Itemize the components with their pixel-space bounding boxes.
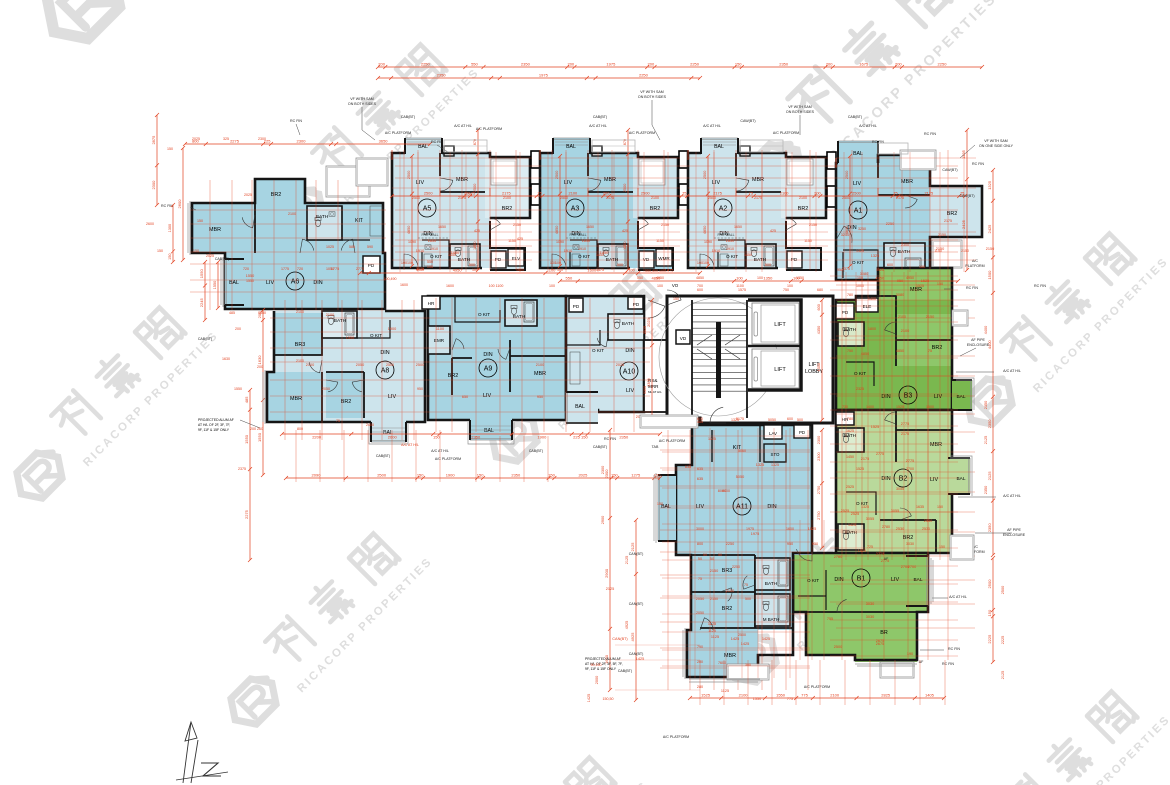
svg-text:BR2: BR2	[271, 192, 282, 198]
svg-text:CAN(BT): CAN(BT)	[629, 602, 644, 606]
svg-text:1910: 1910	[712, 249, 720, 253]
svg-text:2025: 2025	[206, 254, 214, 258]
svg-text:RC FIN: RC FIN	[604, 437, 616, 441]
svg-text:1150: 1150	[508, 239, 516, 243]
svg-text:DIN: DIN	[767, 504, 776, 510]
svg-text:LIV: LIV	[712, 180, 720, 186]
svg-text:PD: PD	[799, 430, 805, 435]
svg-text:A/C PLATFORM: A/C PLATFORM	[435, 457, 461, 461]
svg-text:LAV: LAV	[769, 431, 777, 436]
svg-text:2025: 2025	[616, 363, 624, 367]
svg-text:M BATH: M BATH	[763, 617, 779, 622]
svg-text:A/C PLATFORM: A/C PLATFORM	[804, 685, 830, 689]
svg-text:1525: 1525	[876, 268, 884, 272]
svg-text:LIV: LIV	[564, 180, 572, 186]
svg-text:1125: 1125	[721, 689, 729, 693]
svg-text:9F, 11F & 15F ONLY: 9F, 11F & 15F ONLY	[198, 428, 230, 432]
svg-text:600: 600	[887, 263, 893, 267]
svg-text:100: 100	[557, 268, 563, 272]
svg-text:550,400,100: 550,400,100	[645, 269, 665, 273]
svg-text:2350: 2350	[511, 473, 521, 478]
svg-text:780: 780	[847, 293, 853, 297]
svg-text:585: 585	[349, 245, 355, 249]
svg-text:1525: 1525	[858, 549, 866, 553]
svg-text:5050: 5050	[736, 475, 744, 479]
svg-text:730: 730	[842, 405, 848, 409]
svg-text:1025: 1025	[708, 437, 716, 441]
svg-text:485: 485	[229, 311, 235, 315]
svg-text:3300: 3300	[643, 386, 647, 394]
svg-text:CAB(BT): CAB(BT)	[401, 115, 415, 119]
svg-text:O KIT: O KIT	[852, 260, 864, 265]
svg-text:2375: 2375	[238, 467, 246, 471]
svg-text:200: 200	[567, 62, 574, 67]
svg-text:VD: VD	[680, 336, 687, 341]
svg-text:2525: 2525	[846, 485, 854, 489]
svg-text:200: 200	[257, 365, 263, 369]
svg-text:BATH: BATH	[334, 318, 347, 324]
svg-text:A/C AT H/L: A/C AT H/L	[859, 124, 877, 128]
svg-text:2325: 2325	[856, 387, 864, 391]
svg-text:2100: 2100	[306, 363, 314, 367]
svg-text:780: 780	[847, 417, 853, 421]
svg-text:BATH: BATH	[622, 321, 635, 327]
svg-text:AT H/L OF 2F, 3F, 7F,: AT H/L OF 2F, 3F, 7F,	[198, 423, 230, 427]
svg-text:2100: 2100	[296, 310, 304, 314]
svg-text:1550: 1550	[776, 693, 786, 698]
svg-text:100: 100	[407, 261, 413, 265]
svg-text:1150: 1150	[656, 239, 664, 243]
svg-text:950: 950	[537, 395, 543, 399]
svg-text:1900: 1900	[537, 435, 547, 440]
svg-text:1650: 1650	[586, 225, 594, 229]
svg-text:BAL: BAL	[575, 404, 585, 410]
svg-text:1575: 1575	[738, 288, 746, 292]
svg-text:1090: 1090	[704, 240, 712, 244]
svg-text:A/C: A/C	[972, 259, 978, 263]
svg-text:A/C AT H/L: A/C AT H/L	[589, 124, 607, 128]
svg-text:2350: 2350	[987, 419, 992, 429]
svg-text:2050: 2050	[322, 387, 330, 391]
svg-text:1600: 1600	[446, 284, 454, 288]
svg-text:1910: 1910	[578, 247, 586, 251]
svg-text:2175: 2175	[901, 432, 909, 436]
svg-text:LIV: LIV	[626, 388, 634, 394]
svg-text:4400: 4400	[984, 326, 988, 334]
svg-text:ON BOTH SIDES: ON BOTH SIDES	[348, 102, 377, 106]
svg-text:1775: 1775	[281, 267, 289, 271]
svg-text:2500: 2500	[560, 196, 568, 200]
svg-text:O KIT: O KIT	[478, 312, 490, 317]
svg-text:720: 720	[297, 267, 303, 271]
svg-text:2000: 2000	[595, 676, 599, 684]
svg-text:MBR: MBR	[209, 227, 221, 233]
svg-text:A/C PLATFORM: A/C PLATFORM	[385, 131, 411, 135]
svg-text:BR3: BR3	[722, 568, 733, 574]
svg-text:2100: 2100	[830, 693, 840, 698]
svg-text:2750: 2750	[817, 511, 821, 519]
svg-text:680: 680	[817, 288, 823, 292]
svg-text:75: 75	[928, 349, 932, 353]
svg-text:MBR: MBR	[930, 442, 942, 448]
svg-text:1635: 1635	[916, 505, 924, 509]
svg-text:2150: 2150	[726, 589, 734, 593]
svg-text:2025: 2025	[647, 318, 651, 326]
svg-text:2525: 2525	[851, 512, 859, 516]
svg-text:CAW(BT): CAW(BT)	[740, 119, 755, 123]
svg-text:BAL: BAL	[714, 144, 724, 150]
svg-text:2175: 2175	[924, 191, 933, 196]
svg-text:260: 260	[257, 427, 263, 431]
svg-text:1500: 1500	[987, 270, 992, 280]
svg-text:800: 800	[697, 542, 703, 546]
svg-text:1325: 1325	[756, 463, 764, 467]
svg-text:1625: 1625	[846, 429, 854, 433]
svg-text:RC FIN: RC FIN	[966, 286, 978, 290]
svg-text:2750: 2750	[817, 486, 821, 494]
svg-text:1975: 1975	[606, 62, 616, 67]
svg-text:CAB(BT): CAB(BT)	[848, 115, 862, 119]
svg-text:2350: 2350	[984, 401, 988, 409]
svg-text:A/C AT H/L: A/C AT H/L	[1003, 369, 1021, 373]
svg-text:1550: 1550	[213, 281, 217, 289]
svg-text:4850: 4850	[896, 349, 904, 353]
svg-text:2500: 2500	[1001, 586, 1005, 594]
svg-text:B1: B1	[857, 576, 866, 583]
svg-text:CAW(BT): CAW(BT)	[959, 194, 974, 198]
svg-text:TAB: TAB	[652, 445, 659, 449]
svg-text:2500: 2500	[386, 363, 394, 367]
svg-text:2100: 2100	[296, 359, 304, 363]
svg-text:2500: 2500	[708, 196, 716, 200]
svg-text:100: 100	[472, 268, 478, 272]
svg-text:2780: 2780	[882, 525, 890, 529]
svg-text:2125: 2125	[606, 587, 614, 591]
svg-text:2600: 2600	[177, 199, 182, 209]
svg-text:AF: AF	[919, 660, 924, 664]
svg-text:2500: 2500	[987, 579, 992, 589]
svg-text:KIT: KIT	[355, 218, 363, 224]
svg-text:2125: 2125	[625, 556, 629, 564]
svg-text:BAL: BAL	[484, 428, 494, 434]
svg-text:4850: 4850	[555, 226, 559, 234]
svg-text:1400: 1400	[868, 297, 876, 301]
svg-text:1090: 1090	[556, 240, 564, 244]
svg-text:A/C AT H/L: A/C AT H/L	[703, 124, 721, 128]
svg-text:BR2: BR2	[341, 399, 352, 405]
svg-text:750: 750	[847, 349, 853, 353]
svg-text:2250: 2250	[726, 542, 734, 546]
svg-text:RC FIN: RC FIN	[431, 140, 443, 144]
svg-text:150: 150	[157, 249, 163, 253]
svg-text:7600: 7600	[718, 661, 726, 665]
svg-text:4950: 4950	[906, 276, 914, 280]
svg-text:950: 950	[897, 279, 903, 283]
svg-text:2225: 2225	[1001, 636, 1005, 644]
svg-text:2100: 2100	[503, 196, 511, 200]
svg-text:DIN: DIN	[881, 394, 890, 400]
svg-text:2350: 2350	[619, 435, 629, 440]
svg-text:O KIT: O KIT	[370, 333, 382, 338]
svg-text:2225: 2225	[987, 634, 992, 644]
svg-text:O KIT: O KIT	[592, 348, 604, 353]
svg-text:4950: 4950	[416, 268, 424, 272]
svg-text:9F, 11F & 15F ONLY: 9F, 11F & 15F ONLY	[585, 667, 617, 671]
svg-text:1525: 1525	[701, 693, 711, 698]
svg-text:1910: 1910	[726, 247, 734, 251]
svg-text:75: 75	[537, 191, 541, 196]
svg-text:VF WITH SAM: VF WITH SAM	[984, 139, 1008, 143]
svg-text:2700: 2700	[906, 467, 914, 471]
svg-text:3055: 3055	[896, 487, 904, 491]
svg-text:600: 600	[697, 417, 703, 421]
svg-text:2025: 2025	[643, 326, 647, 334]
svg-text:2300: 2300	[297, 139, 307, 144]
svg-text:1150: 1150	[934, 249, 942, 253]
svg-text:1550: 1550	[199, 269, 204, 279]
svg-text:2100: 2100	[739, 693, 749, 698]
svg-text:2150: 2150	[938, 233, 946, 237]
svg-text:CAB(BT): CAB(BT)	[198, 337, 212, 341]
svg-text:BR2: BR2	[798, 206, 809, 212]
svg-text:2400: 2400	[366, 423, 374, 427]
svg-text:BAL: BAL	[418, 144, 428, 150]
svg-text:BATH: BATH	[765, 581, 778, 587]
svg-text:2350: 2350	[779, 62, 789, 67]
svg-text:2300: 2300	[817, 436, 821, 444]
svg-text:200: 200	[648, 62, 655, 67]
svg-text:1275: 1275	[631, 473, 641, 478]
svg-text:2350: 2350	[437, 73, 447, 78]
svg-text:1630: 1630	[257, 355, 262, 365]
svg-text:MBR: MBR	[534, 371, 546, 377]
svg-text:2100: 2100	[780, 191, 789, 196]
svg-text:2175: 2175	[944, 219, 952, 223]
svg-text:CAN(BT): CAN(BT)	[612, 637, 628, 641]
svg-text:1650: 1650	[428, 239, 436, 243]
svg-text:720: 720	[243, 267, 249, 271]
svg-text:4950: 4950	[453, 268, 463, 273]
svg-text:550: 550	[471, 62, 478, 67]
svg-text:50: 50	[698, 557, 702, 561]
svg-text:2050: 2050	[356, 363, 364, 367]
svg-text:CAB(BT): CAB(BT)	[529, 449, 543, 453]
svg-text:90,150: 90,150	[591, 663, 602, 667]
svg-text:A/C PLATFORM: A/C PLATFORM	[663, 735, 689, 739]
svg-text:1100: 1100	[436, 327, 444, 331]
svg-text:2825: 2825	[881, 693, 891, 698]
svg-text:75: 75	[698, 577, 702, 581]
svg-text:100: 100	[549, 268, 556, 273]
svg-text:3650: 3650	[379, 139, 389, 144]
svg-text:2300: 2300	[151, 180, 156, 190]
svg-text:AF PIPE: AF PIPE	[1007, 528, 1021, 532]
svg-text:MBR: MBR	[290, 396, 302, 402]
svg-text:BAL: BAL	[229, 280, 239, 286]
svg-text:1650: 1650	[726, 239, 734, 243]
svg-text:LIFT: LIFT	[774, 322, 786, 328]
svg-text:200: 200	[814, 191, 821, 196]
svg-text:2900: 2900	[604, 568, 609, 578]
svg-text:150: 150	[673, 297, 679, 301]
svg-text:A9: A9	[484, 366, 493, 373]
svg-text:100: 100	[657, 284, 663, 288]
svg-text:2150: 2150	[961, 249, 969, 253]
svg-text:150: 150	[548, 473, 555, 478]
svg-text:1425: 1425	[762, 637, 770, 641]
svg-text:2175: 2175	[606, 196, 614, 200]
svg-text:100: 100	[555, 261, 561, 265]
svg-text:2050: 2050	[696, 611, 704, 615]
svg-text:2500: 2500	[834, 645, 842, 649]
svg-text:BR2: BR2	[502, 206, 513, 212]
svg-text:VO: VO	[672, 283, 679, 288]
svg-text:150,50: 150,50	[603, 697, 614, 701]
svg-text:2100: 2100	[288, 212, 296, 216]
svg-text:A/C AT H/L: A/C AT H/L	[949, 595, 967, 599]
svg-text:BAL: BAL	[956, 394, 965, 400]
svg-text:1400: 1400	[866, 405, 874, 409]
svg-text:1125: 1125	[708, 629, 716, 633]
svg-text:1125: 1125	[711, 635, 719, 639]
svg-text:150: 150	[987, 609, 992, 616]
svg-text:1450: 1450	[744, 253, 752, 257]
svg-text:3000: 3000	[696, 527, 704, 531]
svg-text:425: 425	[622, 229, 628, 233]
svg-text:1630: 1630	[222, 357, 230, 361]
svg-text:2250: 2250	[938, 62, 948, 67]
svg-text:RC FIN: RC FIN	[948, 647, 960, 651]
svg-text:2775: 2775	[881, 559, 889, 563]
svg-text:1525: 1525	[856, 467, 864, 471]
svg-text:1910: 1910	[416, 249, 424, 253]
svg-text:PD: PD	[842, 310, 849, 315]
svg-text:A1: A1	[854, 208, 863, 215]
svg-text:2780: 2780	[834, 555, 842, 559]
svg-text:1000: 1000	[856, 284, 864, 288]
svg-text:150: 150	[657, 502, 663, 506]
svg-text:2350: 2350	[521, 62, 531, 67]
svg-text:BR2: BR2	[947, 211, 958, 217]
svg-text:A6: A6	[291, 279, 300, 286]
svg-text:CAB(BT): CAB(BT)	[618, 669, 632, 673]
svg-text:1525: 1525	[871, 425, 879, 429]
svg-text:LIV: LIV	[416, 180, 424, 186]
svg-text:1550: 1550	[244, 434, 249, 444]
svg-text:A/C AT H/L: A/C AT H/L	[401, 443, 419, 447]
svg-text:150: 150	[193, 249, 199, 253]
svg-text:2500: 2500	[842, 196, 850, 200]
svg-text:1910: 1910	[564, 249, 572, 253]
svg-text:A10: A10	[623, 369, 636, 376]
svg-text:600: 600	[787, 417, 793, 421]
svg-text:600: 600	[617, 263, 623, 267]
svg-text:2125: 2125	[1001, 671, 1005, 679]
svg-text:150: 150	[611, 473, 618, 478]
svg-text:A5: A5	[423, 206, 432, 213]
svg-text:600: 600	[765, 263, 771, 267]
svg-text:1525: 1525	[896, 405, 904, 409]
svg-text:ENCLOSURE: ENCLOSURE	[1003, 533, 1026, 537]
svg-text:100 1100: 100 1100	[489, 284, 504, 288]
svg-text:EMR: EMR	[434, 338, 445, 343]
svg-text:LIV: LIV	[388, 394, 396, 400]
svg-text:2425: 2425	[961, 219, 966, 229]
svg-text:CAB(BT): CAB(BT)	[593, 445, 607, 449]
svg-text:2100: 2100	[898, 315, 906, 319]
svg-text:2150: 2150	[986, 247, 994, 251]
svg-text:AF PIPE: AF PIPE	[971, 338, 985, 342]
svg-text:650: 650	[462, 395, 468, 399]
svg-text:PD: PD	[573, 304, 580, 309]
svg-text:2100: 2100	[569, 191, 578, 196]
svg-text:B2: B2	[899, 476, 908, 483]
svg-text:2275: 2275	[230, 139, 240, 144]
svg-text:HR: HR	[428, 301, 435, 306]
svg-text:755: 755	[827, 617, 833, 621]
svg-text:50: 50	[703, 553, 707, 557]
svg-text:CAN(BT): CAN(BT)	[629, 552, 644, 556]
svg-text:1325: 1325	[961, 149, 966, 159]
svg-text:2500: 2500	[377, 473, 387, 478]
svg-text:CAN(BT): CAN(BT)	[629, 652, 644, 656]
svg-text:RC FIN: RC FIN	[972, 162, 984, 166]
svg-text:1975: 1975	[539, 73, 549, 78]
svg-text:ON BOTH SIDES: ON BOTH SIDES	[638, 95, 667, 99]
svg-text:100: 100	[703, 261, 709, 265]
svg-text:2530: 2530	[896, 527, 904, 531]
svg-text:100: 100	[549, 284, 555, 288]
svg-text:50: 50	[710, 557, 714, 561]
svg-text:A/C AT H/L: A/C AT H/L	[1003, 494, 1021, 498]
svg-text:2125: 2125	[987, 471, 992, 481]
svg-text:2500: 2500	[424, 191, 433, 196]
svg-text:200: 200	[250, 427, 256, 431]
svg-text:1975: 1975	[746, 527, 754, 531]
svg-text:950: 950	[812, 542, 818, 546]
svg-text:CAB(BT): CAB(BT)	[376, 454, 390, 458]
svg-text:1090: 1090	[408, 240, 416, 244]
svg-text:1350: 1350	[763, 276, 773, 281]
svg-text:2025: 2025	[578, 473, 588, 478]
svg-text:3250: 3250	[841, 233, 849, 237]
svg-text:DIN: DIN	[313, 280, 322, 286]
svg-text:2050: 2050	[696, 597, 704, 601]
svg-text:1550: 1550	[753, 697, 761, 701]
svg-text:2600: 2600	[388, 435, 398, 440]
svg-text:STO: STO	[771, 452, 781, 457]
svg-text:2175: 2175	[502, 191, 511, 196]
svg-text:1425: 1425	[636, 657, 644, 661]
svg-text:4950: 4950	[656, 276, 664, 280]
svg-text:2530: 2530	[922, 527, 930, 531]
svg-text:1550: 1550	[346, 336, 354, 340]
svg-text:1325: 1325	[987, 180, 992, 190]
svg-text:1650: 1650	[438, 225, 446, 229]
svg-text:PROJECTED ALUM AF: PROJECTED ALUM AF	[585, 657, 621, 661]
svg-text:BR3: BR3	[295, 342, 306, 348]
svg-text:VF WITH SAM: VF WITH SAM	[640, 90, 664, 94]
svg-text:75: 75	[749, 191, 753, 196]
svg-text:75: 75	[468, 193, 472, 197]
svg-text:1450: 1450	[596, 253, 604, 257]
svg-text:A/C PLATFORM: A/C PLATFORM	[773, 131, 799, 135]
svg-text:150: 150	[581, 435, 588, 440]
svg-text:ON BOTH SIDES: ON BOTH SIDES	[786, 110, 815, 114]
svg-text:BATH: BATH	[513, 314, 526, 320]
svg-text:2250: 2250	[732, 565, 740, 569]
svg-text:CAB(BT): CAB(BT)	[593, 115, 607, 119]
